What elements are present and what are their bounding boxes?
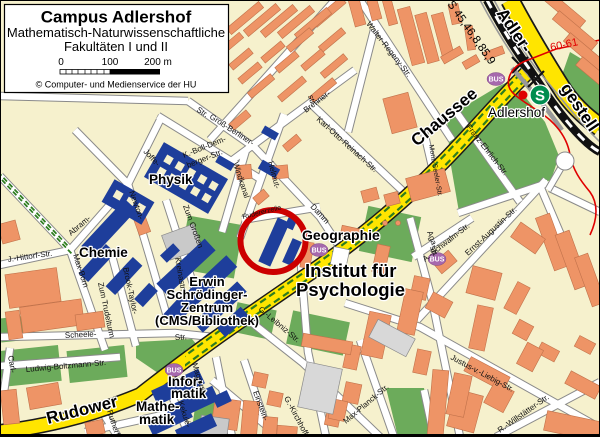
svg-text:(CMS/Bibliothek): (CMS/Bibliothek) — [155, 313, 259, 328]
svg-text:BUS: BUS — [312, 248, 327, 255]
svg-text:© Computer- und Medienservice: © Computer- und Medienservice der HU — [36, 80, 197, 90]
svg-text:matik: matik — [139, 412, 175, 427]
svg-text:S: S — [535, 88, 545, 105]
svg-text:Chemie: Chemie — [79, 245, 128, 260]
svg-text:Adlershof: Adlershof — [488, 105, 545, 120]
svg-text:0: 0 — [58, 57, 64, 68]
svg-text:Str.: Str. — [175, 332, 187, 342]
svg-text:Institut für: Institut für — [305, 260, 396, 281]
svg-text:Geographie: Geographie — [302, 227, 380, 243]
svg-text:100: 100 — [102, 57, 119, 68]
svg-text:Physik: Physik — [149, 172, 193, 187]
svg-text:BUS: BUS — [489, 77, 504, 84]
svg-text:200 m: 200 m — [144, 57, 172, 68]
svg-text:Mathematisch-Naturwissenschaft: Mathematisch-Naturwissenschaftliche — [7, 25, 225, 40]
svg-text:Psychologie: Psychologie — [296, 279, 405, 300]
svg-text:Scheele-: Scheele- — [65, 329, 97, 340]
svg-text:Fakultäten I und II: Fakultäten I und II — [64, 39, 168, 54]
svg-text:Campus Adlershof: Campus Adlershof — [41, 8, 192, 27]
